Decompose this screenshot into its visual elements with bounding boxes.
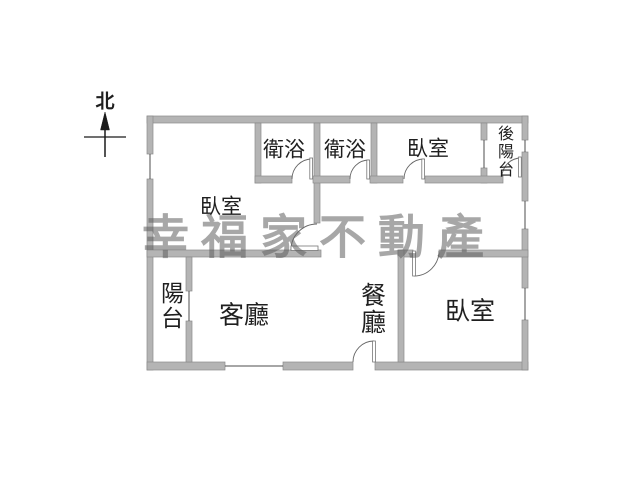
- door-leaf-entrance: [373, 341, 376, 362]
- door-arc-bedroom-top: [404, 159, 424, 179]
- wall-bathroom-divider: [314, 123, 320, 223]
- door-leaf-back-balcony: [519, 157, 522, 177]
- wall-toprow-a: [255, 176, 292, 183]
- wall-outer-bottom-mid: [283, 362, 353, 370]
- wall-backbalcony-divider-upper: [481, 123, 487, 140]
- wall-balcony-divider-lower: [186, 321, 192, 362]
- wall-outer-right-2: [522, 152, 528, 201]
- wall-outer-right-1: [522, 116, 528, 140]
- floor-plan-canvas: 北 衛浴 衛浴 臥室 後陽台 臥室 陽台 客廳 餐廳 臥室 幸福家不動產: [0, 0, 640, 480]
- room-label-balcony: 陽台: [158, 281, 181, 331]
- door-leaf-bathroom1: [310, 158, 313, 179]
- north-arrow-head: [101, 112, 110, 130]
- wall-outer-bottom-left: [147, 362, 225, 370]
- room-label-back-balcony: 後陽台: [496, 125, 512, 179]
- door-leaf-bathroom2: [367, 160, 370, 179]
- wall-toprow-b: [313, 176, 350, 183]
- north-label: 北: [95, 93, 114, 112]
- door-leaf-bedroom-top: [422, 159, 425, 179]
- wall-bathroom2-right: [371, 123, 377, 183]
- room-label-bathroom-2: 衛浴: [324, 140, 366, 161]
- wall-outer-left-upper: [147, 116, 153, 154]
- room-label-living-room: 客廳: [219, 303, 269, 328]
- wall-outer-bottom-right: [375, 362, 528, 370]
- door-arc-bathroom1: [292, 159, 312, 179]
- wall-toprow-d: [425, 176, 503, 183]
- room-label-dining-room: 餐廳: [360, 282, 385, 336]
- room-label-bedroom-bottom-right: 臥室: [445, 299, 495, 324]
- agency-watermark: 幸福家不動產: [142, 215, 496, 262]
- north-arrow: [84, 112, 126, 157]
- wall-outer-left-lower: [147, 179, 153, 370]
- wall-dining-bedroom-divider: [398, 250, 404, 362]
- wall-toprow-c: [370, 176, 403, 183]
- door-arc-bathroom2: [350, 160, 369, 179]
- door-arc-entrance: [353, 341, 374, 362]
- room-label-bedroom-top-right: 臥室: [407, 139, 449, 160]
- wall-outer-top: [147, 116, 528, 123]
- wall-outer-right-3: [522, 229, 528, 288]
- wall-outer-right-4: [522, 320, 528, 370]
- wall-bathroom1-left: [255, 123, 261, 183]
- room-label-bathroom-1: 衛浴: [263, 140, 305, 161]
